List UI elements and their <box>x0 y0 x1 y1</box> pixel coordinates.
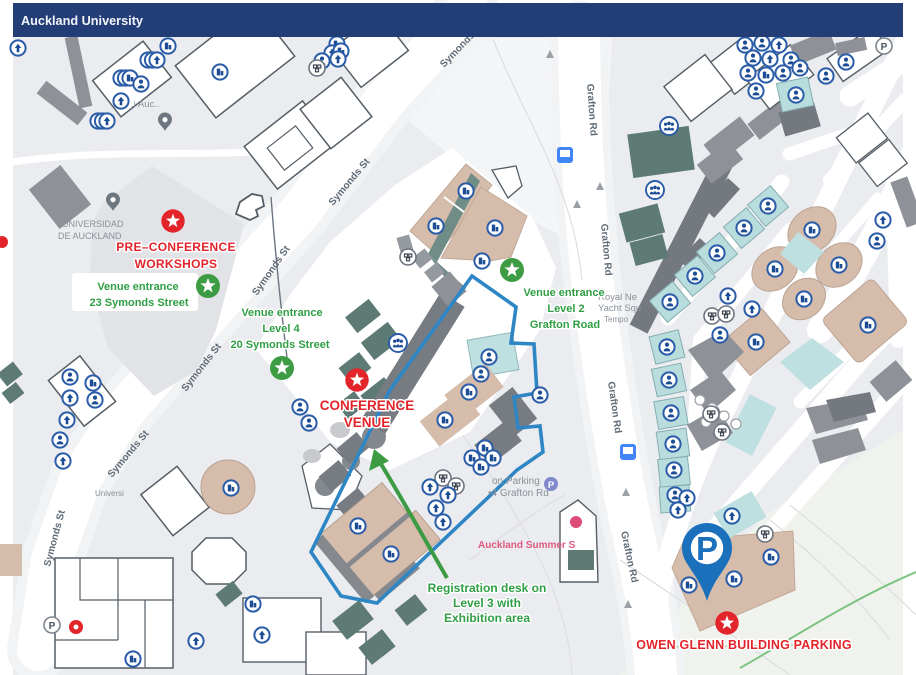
svg-text:UNIVERSIDAD: UNIVERSIDAD <box>62 219 124 229</box>
svg-text:23 Symonds Street: 23 Symonds Street <box>89 297 188 309</box>
svg-text:DE AUCKLAND: DE AUCKLAND <box>58 231 122 241</box>
svg-text:20 Symonds Street: 20 Symonds Street <box>230 339 329 351</box>
svg-text:Venue entrance: Venue entrance <box>241 307 322 319</box>
svg-text:OWEN GLENN BUILDING PARKING: OWEN GLENN BUILDING PARKING <box>636 638 852 652</box>
svg-text:P: P <box>881 42 888 53</box>
svg-text:P: P <box>49 621 56 632</box>
svg-text:Registration desk on: Registration desk on <box>428 581 547 595</box>
svg-text:Yacht Squ: Yacht Squ <box>598 303 641 314</box>
svg-text:on Parking: on Parking <box>492 476 540 487</box>
svg-text:.i Auc..: .i Auc.. <box>131 99 160 110</box>
svg-text:WORKSHOPS: WORKSHOPS <box>135 257 218 271</box>
svg-text:Venue entrance: Venue entrance <box>97 281 178 293</box>
svg-text:Auckland University: Auckland University <box>21 14 143 28</box>
svg-text:P: P <box>696 530 718 567</box>
svg-text:•4 Grafton Rd: •4 Grafton Rd <box>488 488 549 499</box>
svg-text:VENUE: VENUE <box>344 415 391 430</box>
svg-text:P: P <box>548 480 555 491</box>
svg-text:PRE–CONFERENCE: PRE–CONFERENCE <box>116 240 236 254</box>
svg-text:Grafton Road: Grafton Road <box>530 319 600 331</box>
svg-text:Level 2: Level 2 <box>547 303 584 315</box>
svg-text:Tempo: Tempo <box>604 315 629 324</box>
svg-text:Auckland Summer S: Auckland Summer S <box>478 540 576 551</box>
svg-text:Exhibition area: Exhibition area <box>444 611 530 625</box>
svg-text:Venue entrance: Venue entrance <box>523 287 604 299</box>
svg-text:Level 3 with: Level 3 with <box>453 596 521 610</box>
svg-text:Level 4: Level 4 <box>262 323 300 335</box>
svg-text:CONFERENCE: CONFERENCE <box>320 398 415 413</box>
svg-text:Universi: Universi <box>95 489 124 498</box>
